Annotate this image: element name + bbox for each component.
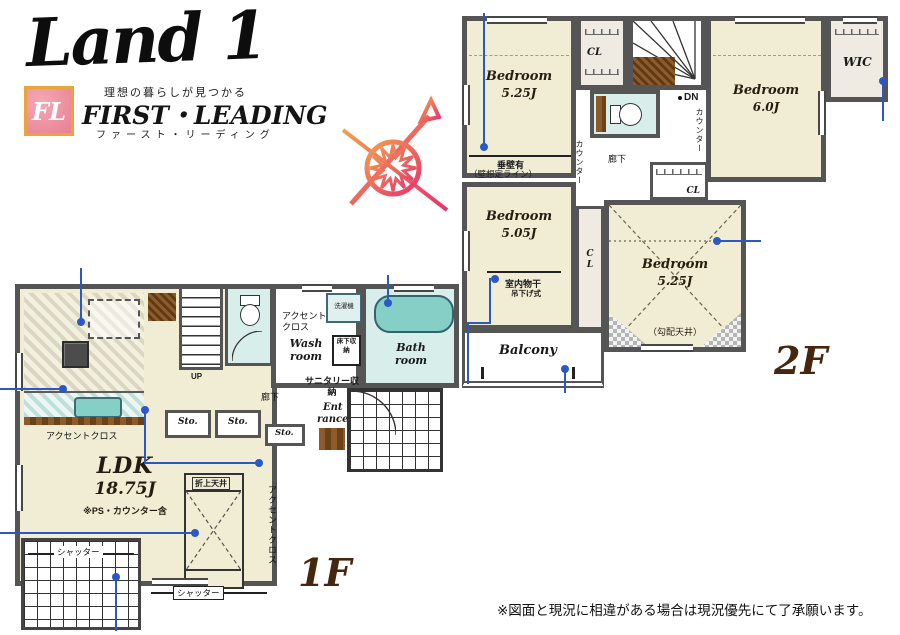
room-2f-bedroom-60: Bedroom 6.0J <box>706 16 826 182</box>
room-2f-closet-vertical: CL <box>576 206 604 330</box>
underfloor-storage-label: 床下収納 <box>334 337 359 355</box>
brand-company-kana: ファースト・リーディング <box>96 126 275 141</box>
annotation-line <box>467 322 469 384</box>
balcony-post <box>481 367 484 379</box>
room-2f-closet-top: CL <box>576 16 628 90</box>
coffered-ceiling-label: 折上天井 <box>192 477 230 490</box>
annotation-dot <box>77 318 85 326</box>
annotation-line <box>489 278 491 322</box>
shutter-label-south: シャッター <box>173 586 224 600</box>
floor-plan-1f: アクセントクロス LDK 18.75J ※PS・カウンター含 折上天井 アクセン… <box>15 282 465 634</box>
annotation-dot <box>491 275 499 283</box>
annotation-dot <box>713 237 721 245</box>
annotation-line <box>467 322 491 324</box>
room-size: 5.25J <box>609 274 741 290</box>
wall-assumed-line <box>469 155 571 157</box>
wood-counter <box>596 96 606 132</box>
entrance-step <box>319 428 345 450</box>
kitchen-sink <box>74 397 122 418</box>
hallway-label-1f: 廊下 <box>261 390 279 403</box>
window <box>818 91 826 135</box>
window <box>487 16 547 24</box>
annotation-line <box>882 83 884 121</box>
room-label: Bedroom 6.0J <box>711 83 821 115</box>
annotation-line <box>387 275 389 299</box>
storage-2: Sto. <box>215 410 261 438</box>
accent-cloth-label-wash: アクセントクロス <box>282 311 330 333</box>
storage-label: Sto. <box>275 428 294 438</box>
bath-room-label: Bath room <box>384 341 438 367</box>
entrance-label: Ent rance <box>317 402 348 426</box>
bath-room-1f: Bath room <box>361 284 459 388</box>
window <box>152 578 208 586</box>
room-name: Bedroom <box>467 209 571 226</box>
room-label: Bedroom 5.05J <box>467 209 571 241</box>
hanging-type-label: 吊下げ式 <box>511 288 541 299</box>
wic-label: WIC <box>843 55 872 69</box>
wall-assumed-line-label: （壁想定ライン） <box>469 168 537 180</box>
hanger-rail <box>585 29 619 35</box>
window <box>302 284 332 292</box>
hanger-rail <box>656 169 702 175</box>
pantry-mat <box>148 293 176 321</box>
entrance-porch <box>347 388 443 472</box>
underfloor-storage-box: 床下収納 <box>332 335 361 366</box>
door-arc <box>232 331 262 361</box>
fl-monogram-badge: FL <box>24 86 74 136</box>
wash-room-1f: 洗濯機 アクセントクロス Wash room 床下収納 <box>271 284 361 388</box>
closet-label: CL <box>585 249 595 271</box>
room-2f-wic: WIC <box>826 16 888 102</box>
compass-icon <box>335 90 460 222</box>
floor-label-2f: 2F <box>774 338 827 383</box>
entrance-line1: Ent <box>317 402 348 414</box>
sloped-ceiling-label: （勾配天井） <box>609 327 741 339</box>
window <box>462 231 470 271</box>
terrace-deck: シャッター <box>21 538 141 630</box>
annotation-dot <box>384 299 392 307</box>
stove <box>62 341 89 368</box>
window <box>641 344 693 352</box>
hallway-label-2f: 廊下 <box>608 152 626 165</box>
annotation-line <box>719 240 761 242</box>
hanger-rail <box>585 69 619 75</box>
brand-logo-script: Land 1 <box>25 0 268 82</box>
wash-room-label: Wash room <box>280 337 332 363</box>
room-name: Bedroom <box>609 257 741 274</box>
counter-wood-edge <box>24 417 144 425</box>
balcony-post <box>572 367 575 379</box>
annotation-dot <box>561 365 569 373</box>
ldk-size: 18.75J <box>50 479 200 499</box>
room-label: Bedroom 5.25J <box>609 257 741 289</box>
ldk-note: ※PS・カウンター含 <box>50 504 200 517</box>
refrigerator-space <box>88 299 140 339</box>
fl-monogram-text: FL <box>32 97 66 126</box>
room-size: 6.0J <box>711 100 821 116</box>
door-arc <box>352 391 396 435</box>
balcony-label: Balcony <box>499 343 557 358</box>
annotation-line <box>144 412 146 464</box>
washer-label: 洗濯機 <box>334 303 354 310</box>
annotation-line <box>0 532 194 534</box>
washer: 洗濯機 <box>326 293 362 323</box>
window <box>462 85 470 125</box>
annotation-dot <box>141 406 149 414</box>
annotation-line <box>115 579 117 631</box>
window <box>394 284 434 292</box>
annotation-line <box>80 268 82 320</box>
annotation-dot <box>255 459 263 467</box>
room-name: Bedroom <box>711 83 821 100</box>
accent-cloth-label-vertical: アクセントクロス <box>266 485 279 589</box>
toilet-room-2f <box>590 90 660 138</box>
room-2f-bedroom-525-upper: Bedroom 5.25J 垂壁有 （壁想定ライン） <box>462 16 576 178</box>
counter-label-right: カウンター <box>694 108 705 170</box>
storage-label: Sto. <box>178 417 198 427</box>
accent-cloth-label-kitchen: アクセントクロス <box>46 429 118 442</box>
ldk-name: LDK <box>50 453 200 479</box>
drying-bar <box>487 271 561 273</box>
dn-dot <box>678 96 682 100</box>
annotation-dot <box>480 143 488 151</box>
stairs-1f <box>179 286 223 370</box>
annotation-line <box>564 371 566 393</box>
room-2f-closet-mid: CL <box>650 162 708 200</box>
room-2f-bedroom-505: Bedroom 5.05J 室内物干 吊下げ式 <box>462 182 576 330</box>
annotation-dot <box>112 573 120 581</box>
toilet-bowl <box>619 103 642 126</box>
annotation-dot <box>59 385 67 393</box>
toilet-bowl <box>240 304 260 326</box>
closet-label: CL <box>587 47 602 58</box>
entrance-line2: rance <box>317 414 348 426</box>
shutter-label-terrace: シャッター <box>54 546 103 558</box>
window <box>843 16 877 24</box>
stairs-2f <box>628 16 706 90</box>
annotation-dot <box>191 529 199 537</box>
closet-label: CL <box>687 186 701 196</box>
storage-label: Sto. <box>228 417 248 427</box>
balcony-2f: Balcony <box>462 330 604 388</box>
up-label: UP <box>191 372 202 381</box>
ceiling-dashed-line <box>713 55 821 56</box>
kitchen-counter <box>24 391 144 417</box>
disclaimer-text: ※図面と現況に相違がある場合は現況優先にて了承願います。 <box>497 599 871 619</box>
floor-plan-2f: Bedroom 5.25J 垂壁有 （壁想定ライン） CL <box>462 16 890 392</box>
window <box>15 353 23 391</box>
room-size: 5.05J <box>467 226 571 242</box>
kitchen-area <box>24 293 144 391</box>
annotation-line <box>0 388 62 390</box>
hanger-rail <box>835 29 879 35</box>
dn-label: DN <box>684 92 698 103</box>
storage-1: Sto. <box>165 410 211 438</box>
flyer-page: Land 1 FL 理想の暮らしが見つかる FIRST・LEADING ファース… <box>0 0 900 635</box>
landing-mat <box>633 57 675 85</box>
annotation-line <box>483 13 485 147</box>
toilet-room-1f <box>225 286 273 366</box>
room-2f-bedroom-525-lower: Bedroom 5.25J （勾配天井） <box>604 200 746 352</box>
annotation-dot <box>879 77 887 85</box>
storage-3: Sto. <box>265 424 305 446</box>
floor-label-1f: 1F <box>298 550 351 595</box>
window <box>15 465 23 511</box>
window <box>735 16 805 24</box>
annotation-line <box>144 462 258 464</box>
